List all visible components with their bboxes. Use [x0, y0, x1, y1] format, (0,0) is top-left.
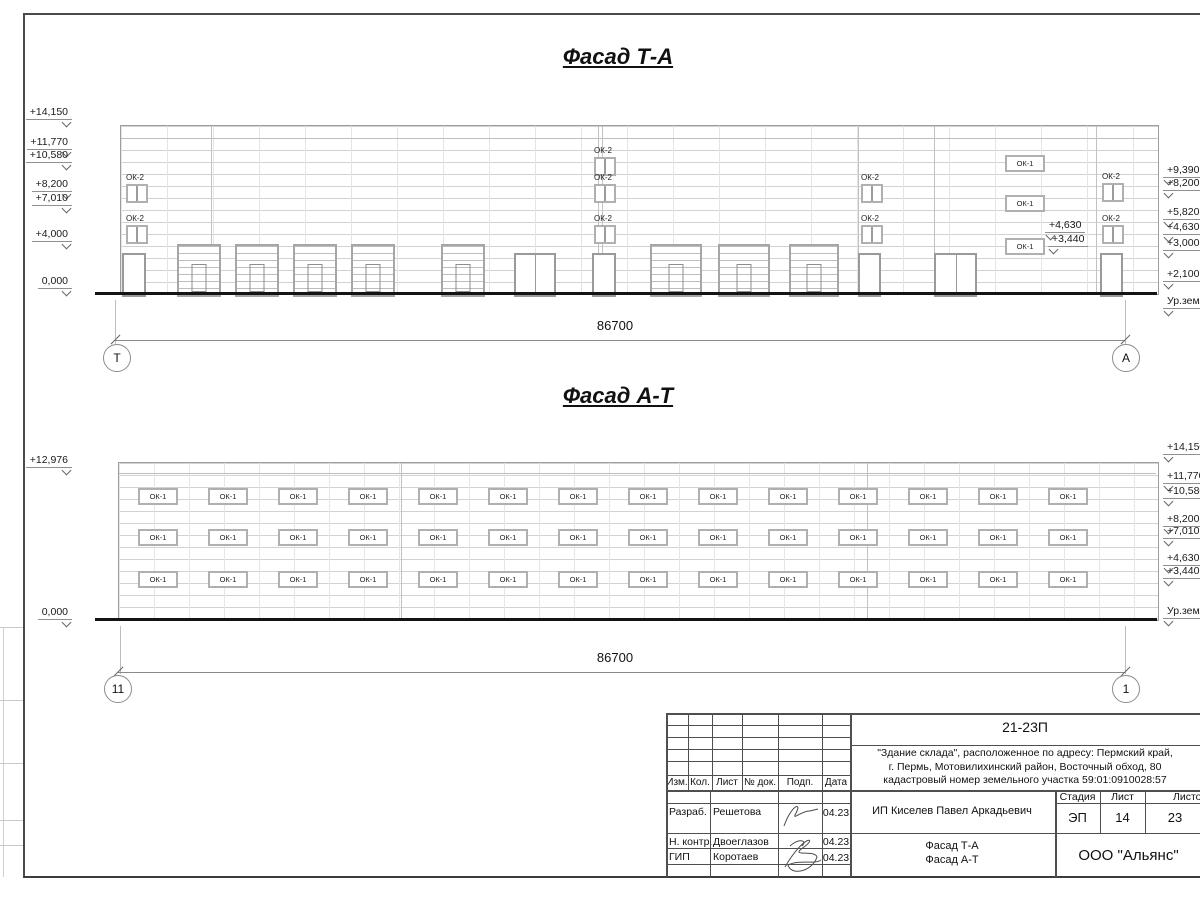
col-ndok: № док.	[742, 777, 778, 788]
window-ok1: ОК-1	[418, 529, 458, 546]
window-ok1: ОК-1	[698, 571, 738, 588]
window-ok2	[1102, 225, 1124, 244]
garage-wicket-door	[250, 264, 265, 292]
row-role: Разраб.	[669, 806, 707, 818]
level-mark: +5,820	[1163, 206, 1200, 220]
axis-mark-11: 11	[104, 675, 132, 703]
title-block-line	[666, 749, 850, 750]
window-ok1: ОК-1	[908, 571, 948, 588]
window-ok1: ОК-1	[558, 529, 598, 546]
window-ok1: ОК-1	[278, 571, 318, 588]
row-role: ГИП	[669, 851, 690, 863]
level-mark: +3,440	[1163, 565, 1200, 579]
title-block-line	[666, 833, 1200, 834]
level-mark: +3,000	[1163, 237, 1200, 251]
dimension-line	[118, 672, 1125, 673]
address-line: "Здание склада", расположенное по адресу…	[850, 747, 1200, 761]
dimension-text: 86700	[515, 650, 715, 665]
window-ok1: ОК-1	[1048, 529, 1088, 546]
window-ok1: ОК-1	[348, 571, 388, 588]
stage-value: ЭП	[1055, 810, 1100, 825]
window-ok1: ОК-1	[628, 529, 668, 546]
level-mark: +11,770	[0, 136, 72, 150]
ground-line-top	[95, 292, 1157, 295]
level-mark: +12,976	[0, 454, 72, 468]
window-ok2	[126, 225, 148, 244]
sheet-title-line: Фасад Т-А	[852, 839, 1052, 853]
col-podp: Подп.	[778, 777, 822, 788]
project-address: "Здание склада", расположенное по адресу…	[850, 747, 1200, 788]
window-ok2-label: ОК-2	[1096, 172, 1126, 182]
window-ok1: ОК-1	[558, 571, 598, 588]
dimension-line	[115, 340, 1125, 341]
drawing-sheet: Фасад Т-А ОК-2ОК-2ОК-2ОК-2ОК-2ОК-2ОК-2ОК…	[0, 0, 1200, 900]
window-ok1: ОК-1	[418, 488, 458, 505]
window-ok1: ОК-1	[1005, 238, 1045, 255]
level-mark: +8,200	[0, 178, 72, 192]
window-ok1: ОК-1	[698, 529, 738, 546]
window-ok1: ОК-1	[278, 529, 318, 546]
garage-wicket-door	[366, 264, 381, 292]
window-ok2-label: ОК-2	[588, 214, 618, 224]
window-ok1: ОК-1	[1048, 571, 1088, 588]
entrance-door	[1100, 253, 1123, 297]
level-mark: +9,390	[1163, 164, 1200, 178]
axis-mark-a: А	[1112, 344, 1140, 372]
title-block-line	[666, 864, 850, 865]
title-block-line	[1100, 790, 1101, 833]
level-mark: +4,630	[1163, 552, 1200, 566]
title-block-line	[1145, 790, 1146, 833]
garage-wicket-door	[807, 264, 822, 292]
window-ok2-label: ОК-2	[1096, 214, 1126, 224]
address-line: г. Пермь, Мотовилихинский район, Восточн…	[850, 761, 1200, 775]
garage-door	[650, 244, 702, 297]
edge-strip-line	[3, 627, 4, 877]
window-ok2	[594, 225, 616, 244]
window-ok2-label: ОК-2	[120, 214, 150, 224]
extension-line	[1125, 626, 1126, 674]
level-mark: +2,100	[1163, 268, 1200, 282]
window-ok1: ОК-1	[628, 571, 668, 588]
entrance-door	[592, 253, 616, 297]
level-mark: +4,630	[1163, 221, 1200, 235]
row-date: 04.23	[822, 836, 850, 848]
level-mark: +14,150	[0, 106, 72, 120]
title-block-line	[850, 745, 1200, 746]
window-ok1: ОК-1	[488, 571, 528, 588]
title-block-line	[666, 725, 850, 726]
col-izm: Изм.	[666, 777, 688, 788]
facade-at-title: Фасад А-Т	[398, 383, 838, 409]
facade-ta-title: Фасад Т-А	[398, 44, 838, 70]
parapet-line	[119, 473, 1156, 474]
window-ok2-label: ОК-2	[855, 173, 885, 183]
garage-door	[718, 244, 770, 297]
window-ok1: ОК-1	[768, 488, 808, 505]
window-ok1: ОК-1	[1005, 155, 1045, 172]
level-mark: +7,010	[1163, 525, 1200, 539]
window-ok1: ОК-1	[488, 488, 528, 505]
sheets-label: Листов	[1150, 791, 1200, 803]
client-name: ИП Киселев Павел Аркадьевич	[852, 805, 1052, 817]
window-ok2-label: ОК-2	[120, 173, 150, 183]
level-mark: 0,000	[0, 275, 72, 289]
window-ok1: ОК-1	[348, 529, 388, 546]
garage-door	[177, 244, 221, 297]
doc-number: 21-23П	[850, 719, 1200, 735]
dimension-text: 86700	[515, 318, 715, 333]
frame-top	[23, 13, 1200, 15]
window-ok1: ОК-1	[978, 571, 1018, 588]
facade-ta-drawing: ОК-2ОК-2ОК-2ОК-2ОК-2ОК-2ОК-2ОК-2ОК-2ОК-1…	[120, 125, 1159, 295]
window-ok1: ОК-1	[558, 488, 598, 505]
window-ok1: ОК-1	[768, 571, 808, 588]
window-ok1: ОК-1	[418, 571, 458, 588]
garage-wicket-door	[308, 264, 323, 292]
level-mark: +4,000	[0, 228, 72, 242]
col-list: Лист	[712, 777, 742, 788]
window-ok1: ОК-1	[908, 488, 948, 505]
signature-reshetova	[779, 801, 821, 831]
facade-at-drawing: ОК-1ОК-1ОК-1ОК-1ОК-1ОК-1ОК-1ОК-1ОК-1ОК-1…	[118, 462, 1159, 621]
sheet-label: Лист	[1100, 791, 1145, 803]
title-block-line	[666, 775, 850, 776]
title-block-line	[666, 713, 1200, 715]
axis-mark-1: 1	[1112, 675, 1140, 703]
row-name: Коротаев	[713, 851, 758, 863]
garage-door	[235, 244, 279, 297]
double-door	[934, 253, 977, 297]
window-ok2	[126, 184, 148, 203]
window-ok2	[594, 184, 616, 203]
title-block-line	[666, 848, 850, 849]
row-date: 04.23	[822, 807, 850, 819]
company-name: ООО "Альянс"	[1057, 847, 1200, 864]
parapet-line	[121, 138, 1156, 139]
garage-wicket-door	[456, 264, 471, 292]
sheet-value: 14	[1100, 810, 1145, 825]
garage-wicket-door	[669, 264, 684, 292]
window-ok1: ОК-1	[208, 529, 248, 546]
window-ok1: ОК-1	[838, 571, 878, 588]
garage-door	[789, 244, 839, 297]
signature-dvoeglasov-korotaev	[778, 832, 824, 877]
level-mark: +10,580	[0, 149, 72, 163]
row-date: 04.23	[822, 852, 850, 864]
level-mark: Ур.земли	[1163, 295, 1200, 309]
sheet-titles: Фасад Т-А Фасад А-Т	[852, 839, 1052, 867]
window-ok2	[1102, 183, 1124, 202]
window-ok1: ОК-1	[1005, 195, 1045, 212]
window-ok1: ОК-1	[978, 488, 1018, 505]
row-name: Решетова	[713, 806, 761, 818]
row-name: Двоеглазов	[713, 836, 769, 848]
window-ok1: ОК-1	[208, 571, 248, 588]
window-ok1: ОК-1	[138, 571, 178, 588]
col-data: Дата	[822, 777, 850, 788]
entrance-door	[122, 253, 146, 297]
window-ok1: ОК-1	[138, 529, 178, 546]
window-ok2-label: ОК-2	[855, 214, 885, 224]
level-mark: +4,630	[1045, 219, 1085, 233]
window-ok2-label: ОК-2	[588, 146, 618, 156]
level-mark: +14,150	[1163, 441, 1200, 455]
title-block-line	[1055, 803, 1200, 804]
stage-label: Стадия	[1055, 791, 1100, 803]
ground-line-bottom	[95, 618, 1157, 621]
window-ok1: ОК-1	[208, 488, 248, 505]
garage-wicket-door	[737, 264, 752, 292]
address-line: кадастровый номер земельного участка 59:…	[850, 774, 1200, 788]
window-ok1: ОК-1	[768, 529, 808, 546]
sheets-value: 23	[1145, 810, 1200, 825]
window-ok1: ОК-1	[278, 488, 318, 505]
level-mark: +7,010	[0, 192, 72, 206]
row-role: Н. контр.	[669, 836, 712, 848]
garage-door	[293, 244, 337, 297]
garage-door	[351, 244, 395, 297]
title-block-line	[666, 790, 1200, 792]
facade-panel-joint	[1096, 126, 1097, 292]
level-mark: +8,200	[1163, 177, 1200, 191]
window-ok1: ОК-1	[908, 529, 948, 546]
window-ok2-label: ОК-2	[588, 173, 618, 183]
double-door	[514, 253, 556, 297]
level-mark: 0,000	[0, 606, 72, 620]
window-ok2	[861, 225, 883, 244]
level-mark: +10,580	[1163, 485, 1200, 499]
window-ok1: ОК-1	[628, 488, 668, 505]
window-ok1: ОК-1	[978, 529, 1018, 546]
window-ok1: ОК-1	[838, 488, 878, 505]
window-ok1: ОК-1	[348, 488, 388, 505]
facade-panel-joint	[401, 463, 402, 618]
window-ok2	[861, 184, 883, 203]
level-mark: Ур.земли	[1163, 605, 1200, 619]
title-block-line	[666, 803, 850, 804]
window-ok1: ОК-1	[138, 488, 178, 505]
sheet-title-line: Фасад А-Т	[852, 853, 1052, 867]
window-ok1: ОК-1	[1048, 488, 1088, 505]
title-block-line	[850, 713, 852, 877]
col-kol: Кол.	[688, 777, 712, 788]
garage-wicket-door	[192, 264, 207, 292]
axis-mark-t: Т	[103, 344, 131, 372]
level-mark: +11,770	[1163, 470, 1200, 484]
entrance-door	[858, 253, 881, 297]
window-ok1: ОК-1	[698, 488, 738, 505]
window-ok1: ОК-1	[488, 529, 528, 546]
frame-bottom	[23, 876, 1200, 878]
title-block-line	[666, 761, 850, 762]
level-mark: +3,440	[1048, 233, 1088, 247]
window-ok1: ОК-1	[838, 529, 878, 546]
title-block-line	[666, 737, 850, 738]
garage-door	[441, 244, 485, 297]
